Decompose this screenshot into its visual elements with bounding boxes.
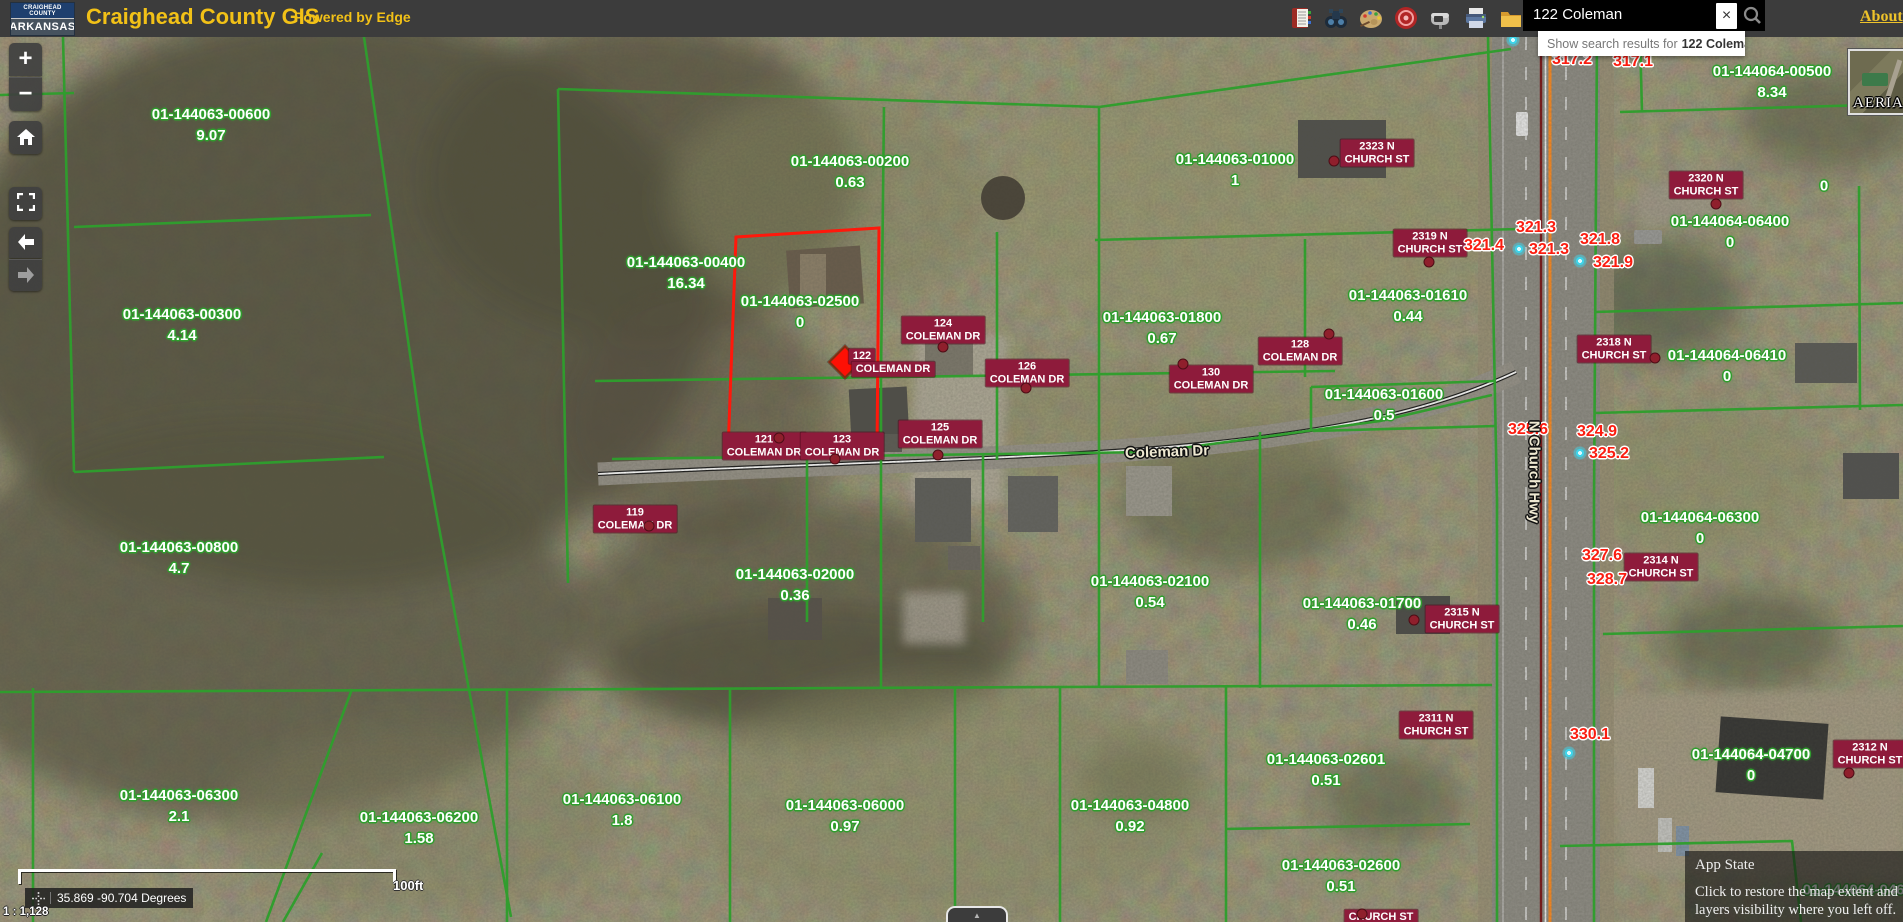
next-extent-button[interactable] [9,259,42,291]
printer-icon[interactable] [1463,5,1489,31]
search-box: × [1523,0,1765,31]
county-logo: CRAIGHEAD COUNTY ARKANSAS [10,2,75,36]
coordinates-text: 35.869 -90.704 Degrees [57,891,186,905]
target-icon[interactable] [1393,5,1419,31]
application-window: 01-144063-006009.0701-144063-003004.1401… [0,0,1903,922]
home-extent-button[interactable] [9,121,42,154]
home-icon [16,127,36,147]
app-title: Craighead County GIS [86,4,319,30]
search-clear-button[interactable]: × [1716,3,1737,29]
app-state-panel[interactable]: App State × Click to restore the map ext… [1685,851,1903,922]
search-submit-button[interactable] [1739,0,1765,31]
scale-bar-label: 100ft [393,878,423,893]
app-state-body: Click to restore the map extent and laye… [1695,883,1903,919]
map-canvas[interactable] [0,0,1903,922]
mailbox-icon[interactable] [1428,5,1454,31]
scale-bar [18,869,396,884]
zoom-out-button[interactable]: − [9,77,42,111]
logo-line2: ARKANSAS [11,19,74,35]
coordinates-readout: 35.869 -90.704 Degrees [25,888,193,908]
basemap-label: AERIAL [1853,95,1903,112]
previous-extent-button[interactable] [9,227,42,258]
crosshair-icon [32,892,45,905]
app-state-title: App State [1695,857,1903,874]
search-input[interactable] [1529,2,1717,27]
suggestion-query: 122 Coleman [1682,37,1745,51]
logo-line1: CRAIGHEAD COUNTY [11,3,74,19]
search-suggestion-item[interactable]: Show search results for 122 Coleman [1538,31,1745,56]
back-arrow-icon [16,233,36,251]
suggestion-prefix: Show search results for [1547,37,1678,51]
palette-icon[interactable] [1358,5,1384,31]
scale-ratio-text: 1 : 1,128 [3,906,48,918]
folder-icon[interactable] [1498,5,1524,31]
header-toolbar [1288,5,1524,31]
bottom-panel-toggle[interactable]: ▲ [946,906,1008,922]
aerial-imagery [0,0,1903,922]
powered-by-text: Powered by Edge [294,9,411,25]
basemap-switcher[interactable]: AERIAL [1848,49,1903,115]
binoculars-icon[interactable] [1323,5,1349,31]
fullscreen-button[interactable] [9,187,42,220]
address-book-icon[interactable] [1288,5,1314,31]
zoom-in-button[interactable]: + [9,43,42,76]
forward-arrow-icon [16,266,36,284]
basemap-thumb-pond [1862,73,1888,86]
selected-address-street-chip: COLEMAN DR [852,362,935,377]
fullscreen-icon [17,193,35,211]
about-link[interactable]: About [1860,8,1903,26]
